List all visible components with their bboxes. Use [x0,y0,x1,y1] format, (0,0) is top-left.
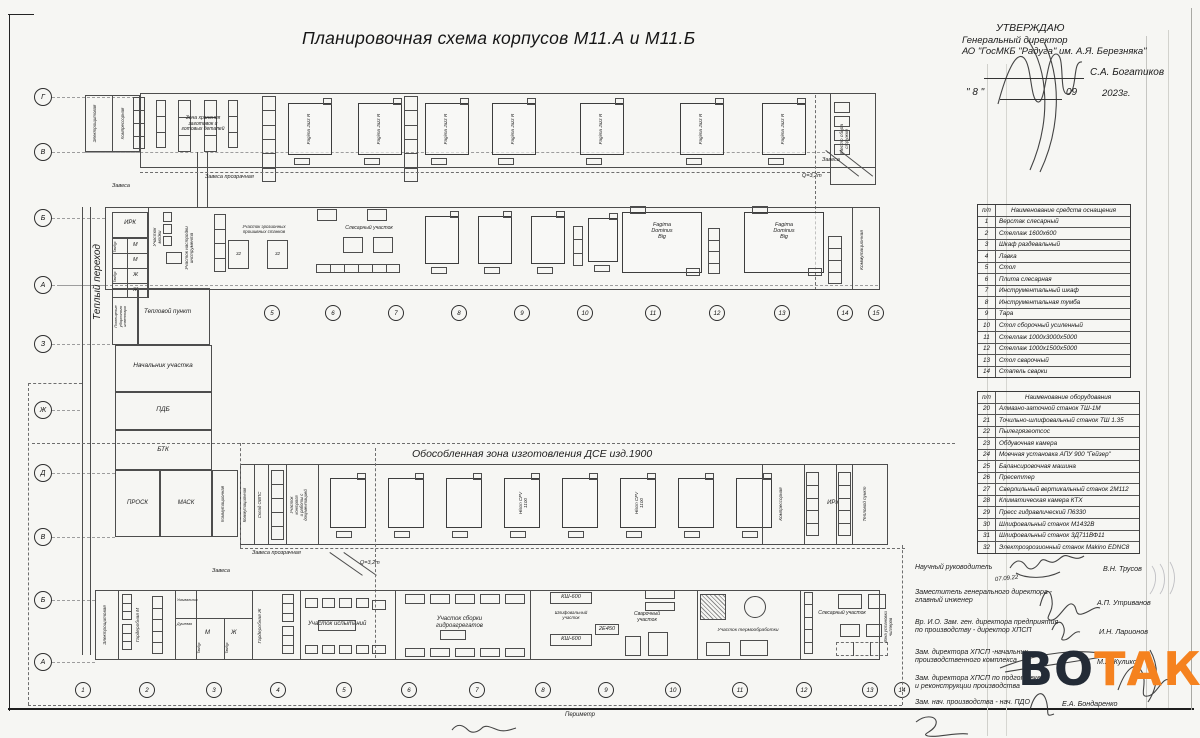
machine-detail [431,267,447,274]
zone-label: Участок термообработки [710,628,786,633]
rack-cell-line [573,253,583,254]
rack-cell-line [152,608,163,609]
axis-row-circle: В [34,143,52,161]
room-label: Начальник участка [118,362,208,369]
axis-leader [52,662,95,663]
rack-cell-line [828,260,842,261]
room-wall [762,464,763,545]
machine-detail [768,158,784,165]
room-label: Ж [231,630,243,637]
rack-cell-line [404,168,418,169]
bench-box [305,598,318,608]
machine-detail [647,473,656,480]
bench-box [322,645,335,654]
rack-cell-line [838,510,851,511]
room-wall [254,464,255,545]
room-label: Гардеробная М [136,596,141,654]
bench-box [430,648,450,657]
corridor-wall [82,207,83,655]
bench-box [440,630,466,640]
axis-row-circle: Д [34,464,52,482]
room-heatpoint [138,288,210,345]
equipment-box [367,209,387,221]
perimeter-label: Периметр [565,712,625,719]
machine-detail [503,211,512,218]
machine-detail [323,98,332,105]
machine-ref: 32 [267,251,288,256]
machine-detail [484,267,500,274]
curtain-dashed [240,548,905,549]
axis-col-circle: 6 [325,305,341,321]
room-label: ПДБ [118,406,208,413]
equipment-box [740,640,768,656]
bench-box [455,594,475,604]
axis-col-circle: 7 [469,682,485,698]
machine-outline [678,478,714,528]
machine-outline [425,216,459,264]
equipment-box [163,236,172,246]
machine-label: КШ-600 [550,636,592,642]
rack-cell-line [806,485,819,486]
room-label: Электрощитовая [102,594,107,656]
machine-outline [736,478,772,528]
rack-cell-line [133,123,145,124]
bench-box [322,598,335,608]
axis-col-circle: 4 [270,682,286,698]
rack-cell-line [262,139,276,140]
room-label: М [133,257,145,263]
rack-cell-line [152,631,163,632]
signature-role: Заместитель генерального директора - гла… [915,589,1100,605]
room-label: ПРОСК [115,500,160,507]
room-label-small: Умывальник [177,598,197,602]
machine-label: КШ-600 [550,594,592,600]
machine-detail [684,531,700,538]
axis-col-circle: 13 [774,305,790,321]
equipment-box [840,624,860,637]
axis-leader [52,600,95,601]
rack-shelf [152,596,163,654]
rack-cell-line [282,635,294,636]
equipment-box [706,642,730,656]
balancing-machine [744,596,766,618]
rack-cell-line [133,136,145,137]
room-label: Коммутационная [243,470,248,540]
crane-height-label: Q=3,2m [802,173,836,179]
rack-cell-line [708,263,720,264]
bench-box [505,648,525,657]
rack-cell-line [178,135,191,136]
zone-dashed [32,443,955,444]
rack-cell-line [708,251,720,252]
axis-col-circle: 8 [451,305,467,321]
bench-box [405,594,425,604]
axis-col-circle: 10 [665,682,681,698]
machine-detail [609,213,618,220]
curtain-label: Завеса [212,568,242,574]
machine-detail [498,158,514,165]
machine-label: 2Е450 [595,626,619,632]
room-wall [836,464,837,545]
zone-label: Зона хранения заготовок и готовых детале… [163,116,243,133]
machine-detail [431,158,447,165]
rack-cell-line [804,642,813,643]
equipment-box [343,237,363,253]
axis-col-circle: 11 [645,305,661,321]
axis-col-circle: 8 [535,682,551,698]
bench-cell-line [344,264,345,273]
chip-bin [834,116,850,127]
axis-col-circle: 13 [862,682,878,698]
rack-cell-line [806,523,819,524]
machine-label: Fagima Dominus Big [626,222,698,240]
machine-detail [752,206,768,214]
machine-detail [715,98,724,105]
zone-dashed [240,443,241,548]
zone-label: Участок контроля и работы с документацие… [290,468,309,542]
room-wall [252,590,253,660]
rack-cell-line [404,139,418,140]
bench-box [505,594,525,604]
rack-cell-line [838,485,851,486]
room-wall [395,590,396,660]
machine-detail [460,98,469,105]
machine-outline [531,216,565,264]
machine-label: Fagima Jazz R [443,108,448,150]
rack-cell-line [282,645,294,646]
rack-cell-line [122,603,132,604]
equipment-box [645,590,675,599]
rack-cell-line [282,613,294,614]
room-wall [530,590,531,660]
machine-label: Fagima Jazz R [376,108,381,150]
weld-table [648,632,668,656]
room-label: Тепловой пункт [862,468,867,540]
machine-detail [586,158,602,165]
zone-label: Участок эрозионных прошивных станков [234,224,294,234]
botak-watermark: ВОТАК [1018,646,1200,692]
rack-cell-line [214,243,226,244]
curtain-dashed [140,172,830,173]
machine-detail [615,98,624,105]
machine-detail [415,473,424,480]
machine-label: Fagima Jazz R [780,108,785,150]
bench-cell-line [330,264,331,273]
room-label: Гардеробная Ж [258,598,263,654]
machine-detail [630,206,646,214]
axis-col-circle: 9 [514,305,530,321]
curtain-label: Завеса прозрачная [205,174,290,180]
machine-detail [450,211,459,218]
room-label-small: Тамбур [226,640,230,656]
bench-cell-line [386,264,387,273]
machine-outline [588,218,618,262]
drawing-sheet: Планировочная схема корпусов М11.А и М11… [0,0,1200,738]
equipment-box [317,209,337,221]
axis-col-circle: 11 [732,682,748,698]
room-wall [318,464,319,545]
rack-cell-line [806,510,819,511]
rack-shelf [804,592,813,654]
crane-height-label: Q=3,2m [360,560,394,566]
room-wall [697,590,698,660]
machine-detail [568,531,584,538]
equipment-box [166,252,182,264]
room-wall [800,590,801,660]
bench-box [318,620,356,631]
watermark-part-1: ВО [1018,642,1094,696]
axis-col-circle: 6 [401,682,417,698]
zone-label: Участок мойки [152,212,162,262]
rack-cell-line [271,526,284,527]
machine-outline [478,216,512,264]
machine-detail [527,98,536,105]
room-label: Компрессорная [120,97,125,150]
room-wall [224,618,225,660]
rack-cell-line [262,168,276,169]
axis-col-circle: 9 [598,682,614,698]
bench-box [339,598,352,608]
machine-detail [556,211,565,218]
curtain-label: Завеса [112,183,142,189]
axis-row-circle: А [34,653,52,671]
signature-role: Вр. И.О. Зам. ген. директора предприятия… [915,619,1100,635]
room-wall [852,207,853,290]
signature-role: Научный руководитель [915,564,1100,572]
room-label: ИРК [112,220,148,227]
rack-cell-line [152,642,163,643]
bench-box [480,594,500,604]
rack-cell-line [152,619,163,620]
axis-row-circle: Ж [34,401,52,419]
machine-detail [589,473,598,480]
room-wall [112,95,113,152]
bench-box [430,594,450,604]
equipment-box [163,224,172,234]
machine-detail [294,158,310,165]
axis-col-circle: 12 [709,305,725,321]
machine-outline [562,478,598,528]
perimeter-dashed [28,383,82,384]
rack-shelf [838,472,851,536]
room-label: Электрощитовая [92,97,97,150]
machine-detail [797,98,806,105]
rack-cell-line [204,135,217,136]
room-wall [175,618,196,619]
axis-row-circle: Б [34,209,52,227]
bench-cell-line [358,264,359,273]
machine-detail [705,473,714,480]
weld-table [625,636,641,656]
rack-cell-line [214,258,226,259]
machine-detail [394,531,410,538]
bench-box [305,645,318,654]
machine-label: Fagima Jazz R [698,108,703,150]
machine-detail [531,473,540,480]
rack-shelf [122,624,132,650]
rack-cell-line [271,484,284,485]
rack-cell-line [122,641,132,642]
room-wall [112,268,148,269]
signature-name: А.П. Утриванов [1097,599,1189,607]
room-wall [268,464,269,545]
axis-col-circle: 5 [336,682,352,698]
machine-detail [686,158,702,165]
equipment-box [163,212,172,222]
rack-cell-line [282,603,294,604]
zone-label: Сварочный участок [626,612,668,623]
equipment-box [838,594,862,609]
bench-cell-line [853,642,854,656]
machine-detail [626,531,642,538]
room-label-small: Тамбур [114,270,118,284]
curtain-diagonal [329,552,362,576]
rack-shelf [573,226,583,266]
machine-detail [763,473,772,480]
room-label: Склад ОВПС [257,470,262,540]
room-label: Компрессорная [778,470,783,538]
room-label-small: Душевая [177,622,197,626]
room-label: Ж [133,272,145,278]
machine-label: Fagima Jazz R [598,108,603,150]
room-label: М [133,242,145,248]
zone-label: Шлифовальный участок [548,610,594,620]
rack-cell-line [804,604,813,605]
floor-plan: Научный руководительВ.Н. ТрусовЗаместите… [0,0,1200,738]
bench-box [455,648,475,657]
axis-col-circle: 2 [139,682,155,698]
room-wall [804,464,805,545]
bench-box [356,598,369,608]
machine-detail [594,265,610,272]
rack-cell-line [271,498,284,499]
rack-cell-line [271,512,284,513]
watermark-part-2: ТАК [1094,642,1200,696]
room-label: М [205,630,217,637]
machine-outline [388,478,424,528]
axis-leader [52,473,115,474]
machine-outline [446,478,482,528]
rack-shelf [271,470,284,540]
axis-leader [52,537,115,538]
perimeter-dashed [28,705,902,706]
rack-cell-line [804,617,813,618]
equipment-box [373,237,393,253]
room-label: Тепловой пункт [144,308,208,315]
machine-detail [452,531,468,538]
rack-cell-line [262,153,276,154]
axis-col-circle: 10 [577,305,593,321]
corridor-label: Теплый переход [92,232,103,332]
rack-cell-line [828,272,842,273]
signature-name: И.Н. Ларионов [1099,628,1191,636]
signature-name: Е.А. Бондаренко [1062,700,1154,708]
zone-label: Слесарный участок [810,611,874,617]
room-label: Коммутационная [220,476,225,532]
rack-cell-line [122,611,132,612]
axis-row-circle: А [34,276,52,294]
room-wall [118,590,119,660]
axis-leader [52,218,105,219]
axis-row-circle: Г [34,88,52,106]
machine-detail [537,267,553,274]
room-wall [300,590,301,660]
machine-detail [686,268,700,276]
bench-box [356,645,369,654]
rack-shelf [282,594,294,622]
signature-date-note: 07.09.22 [995,573,1035,584]
machine-detail [742,531,758,538]
axis-leader [52,410,80,411]
axis-col-circle: 7 [388,305,404,321]
rack-cell-line [122,633,132,634]
axis-row-circle: З [34,335,52,353]
axis-col-circle: 15 [868,305,884,321]
axis-col-circle: 14 [837,305,853,321]
room-label: МАСК [160,500,212,507]
rack-cell-line [262,125,276,126]
rack-cell-line [404,110,418,111]
rack-shelf [282,626,294,654]
rack-cell-line [804,629,813,630]
axis-row-circle: Б [34,591,52,609]
room-label-small: Тамбур [114,240,118,254]
rack-cell-line [708,240,720,241]
equipment-box [866,624,882,637]
machine-detail [473,473,482,480]
machine-label: Hison CFV 1100 [634,483,644,523]
room-label: Коммутационная [860,214,865,286]
room-label: Помещение уборочного инвентаря [114,290,128,343]
room-wall [148,207,149,298]
storage-dashed-box [836,642,888,656]
rack-cell-line [828,248,842,249]
machine-detail [364,158,380,165]
rack-cell-line [806,498,819,499]
rack-cell-line [838,498,851,499]
room-wall [286,464,287,545]
perimeter-dashed [902,545,903,705]
room-label-small: Тамбур [198,640,202,656]
axis-row-circle: В [34,528,52,546]
curtain-label: Завеса [822,157,852,163]
bench-box [372,645,386,654]
rack-cell-line [573,239,583,240]
bench-box [372,600,386,610]
axis-col-circle: 3 [206,682,222,698]
rack-cell-line [214,229,226,230]
signature-name: В.Н. Трусов [1103,565,1195,573]
bench-box [480,648,500,657]
machine-outline [330,478,366,528]
machine-label: Fagima Jazz R [306,108,311,150]
rack-cell-line [404,153,418,154]
room-label: БТК [118,446,208,453]
machine-detail [336,531,352,538]
zone-label: Слесарный участок [340,226,398,232]
axis-col-circle: 12 [796,682,812,698]
rack-shelf [806,472,819,536]
machine-detail [393,98,402,105]
machine-detail [510,531,526,538]
axis-leader [52,344,115,345]
rack-cell-line [404,125,418,126]
machine-label: Hison CFV 1100 [518,483,528,523]
axis-col-circle: 1 [75,682,91,698]
corridor-wall [90,207,91,655]
rack-cell-line [262,110,276,111]
bench-cell-line [372,264,373,273]
